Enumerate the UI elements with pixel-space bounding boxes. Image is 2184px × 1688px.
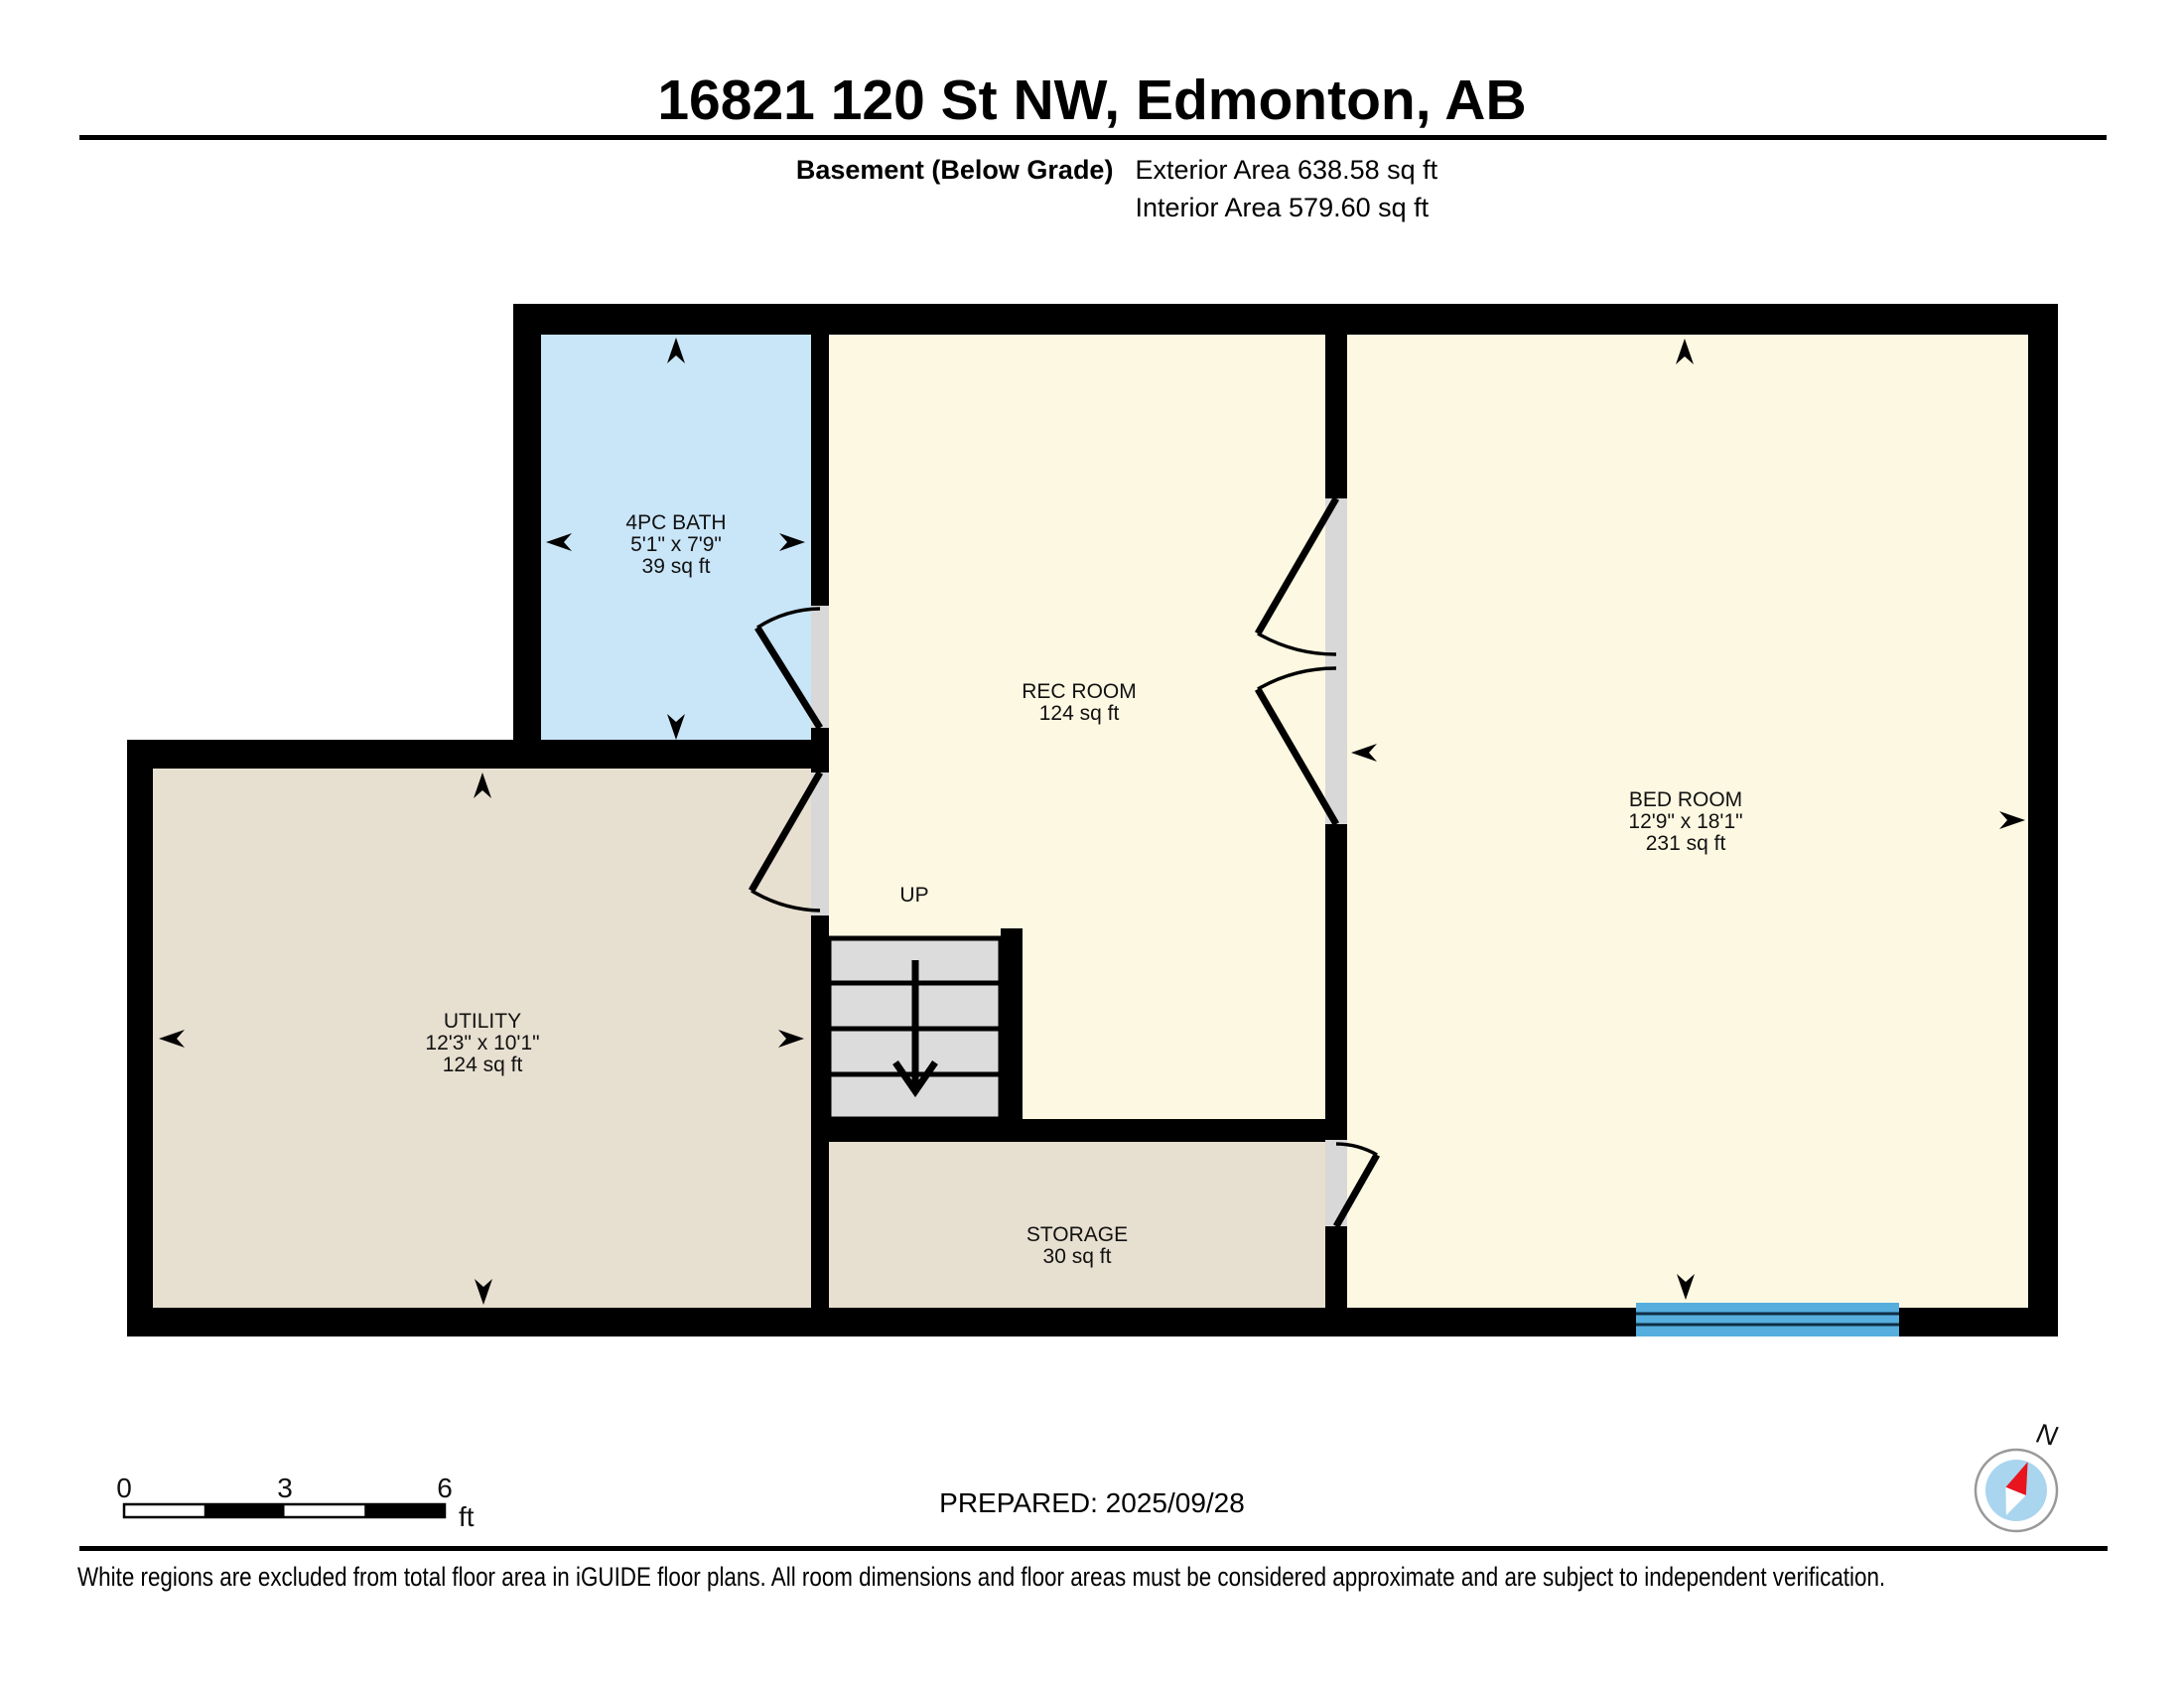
wall-spine-lower bbox=[811, 915, 829, 1308]
wall-stairs-right bbox=[1001, 928, 1023, 1119]
utility-door-opening bbox=[811, 773, 829, 915]
rec-area: 124 sq ft bbox=[1039, 702, 1120, 725]
window-glass bbox=[1636, 1303, 1899, 1336]
rec-name: REC ROOM bbox=[1022, 680, 1137, 703]
disclaimer-text: White regions are excluded from total fl… bbox=[77, 1562, 1885, 1593]
wall-utility-top bbox=[127, 740, 829, 769]
bedroom-window bbox=[1636, 1303, 1899, 1336]
wall-recbed-lower bbox=[1325, 1226, 1347, 1308]
wall-spine-junction bbox=[811, 728, 829, 773]
storage-name: STORAGE bbox=[1026, 1223, 1128, 1246]
floor-plan: 4PC BATH 5'1" x 7'9" 39 sq ft REC ROOM 1… bbox=[0, 0, 2184, 1688]
wall-storage-top bbox=[811, 1119, 1347, 1142]
utility-dims: 12'3" x 10'1" bbox=[425, 1032, 539, 1055]
utility-name: UTILITY bbox=[444, 1010, 521, 1033]
stairs-up-label: UP bbox=[899, 884, 928, 907]
wall-top bbox=[513, 304, 2058, 335]
bath-name: 4PC BATH bbox=[625, 511, 726, 534]
storage-area: 30 sq ft bbox=[1043, 1245, 1112, 1268]
prepared-date: PREPARED: 2025/09/28 bbox=[0, 1487, 2184, 1519]
wall-left bbox=[127, 740, 153, 1336]
wall-bath-left bbox=[513, 304, 541, 767]
wall-recbed-mid bbox=[1325, 824, 1347, 1140]
wall-right bbox=[2028, 304, 2058, 1336]
compass-north-label: N bbox=[2034, 1418, 2061, 1453]
bath-area: 39 sq ft bbox=[642, 555, 711, 578]
bed-dims: 12'9" x 18'1" bbox=[1628, 810, 1742, 833]
wall-recbed-upper bbox=[1325, 304, 1347, 498]
bath-door-opening bbox=[811, 606, 829, 728]
bed-name: BED ROOM bbox=[1629, 788, 1742, 811]
utility-area: 124 sq ft bbox=[443, 1054, 523, 1076]
footer-divider bbox=[79, 1546, 2108, 1551]
staircase bbox=[829, 938, 1001, 1119]
double-door-opening bbox=[1325, 498, 1347, 824]
bed-area: 231 sq ft bbox=[1646, 832, 1726, 855]
wall-bath-right bbox=[811, 304, 829, 606]
bath-dims: 5'1" x 7'9" bbox=[630, 533, 722, 556]
